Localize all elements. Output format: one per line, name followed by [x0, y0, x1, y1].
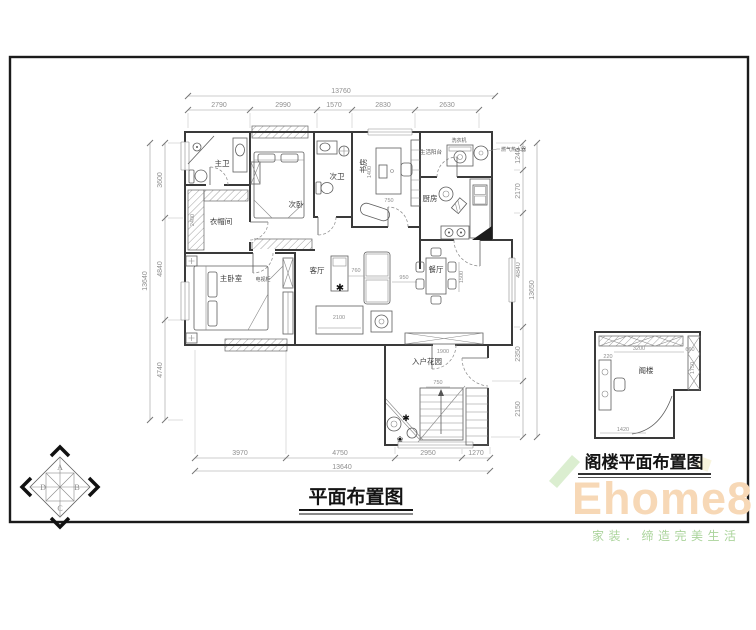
- dim-right-4: 2350: [515, 346, 522, 362]
- dining-table: [426, 258, 446, 294]
- compass-letter-e: B: [74, 483, 79, 492]
- room-label-master-bath: 主卫: [215, 158, 230, 168]
- flower-icon: ❀: [397, 435, 404, 444]
- dim-left-total: 13640: [142, 271, 149, 291]
- washer-label: 洗衣机: [451, 137, 466, 144]
- room-label-kitchen: 厨房: [423, 193, 438, 203]
- dimension-chain-left: 3600 4840 4740 13640: [142, 140, 183, 423]
- main-floor-plan: ✱ ✱ ❀ 主卫 衣帽间 次卧 次卫 书房 生活阳台 厨房 主卧室 客厅 餐厅 …: [181, 126, 526, 449]
- dim-shoe-cabinet: 1900: [437, 349, 449, 355]
- tv-cabinet-label: 电视柜: [255, 276, 270, 283]
- dim-bottom-4: 1270: [468, 450, 484, 457]
- floor-plan-drawing: 13760 2790 2990 1570 2830 2630 3970 4750…: [0, 0, 756, 630]
- main-title: 平面布置图: [308, 485, 403, 508]
- room-label-second-bedroom: 次卧: [289, 199, 304, 209]
- dim-left-3: 4740: [157, 362, 164, 378]
- room-label-second-bath: 次卫: [330, 171, 345, 181]
- dim-bottom-2: 4750: [332, 450, 348, 457]
- room-label-master-bedroom: 主卧室: [220, 273, 243, 283]
- dim-bottom-3: 2950: [420, 450, 436, 457]
- dim-top-5: 2630: [439, 102, 455, 109]
- bedroom-wardrobe-hatch: [252, 239, 312, 250]
- room-label-entry-garden: 入户花园: [412, 356, 442, 366]
- kitchen-fixtures: [439, 179, 492, 240]
- plant-icon: ✱: [402, 413, 410, 423]
- master-bedroom-furniture: [186, 256, 293, 343]
- floor-plan-sheet: 13760 2790 2990 1570 2830 2630 3970 4750…: [0, 0, 756, 630]
- dim-attic-desk: 220: [603, 354, 612, 360]
- washing-machine: [454, 151, 466, 163]
- water-heater-label: 燃气热水器: [501, 146, 526, 153]
- closet-top-wardrobe-hatch: [204, 190, 248, 201]
- dim-bottom-total: 13640: [332, 464, 352, 471]
- dim-top-3: 1570: [326, 102, 342, 109]
- attic-title: 阁楼平面布置图: [585, 452, 704, 472]
- plant-icon: ✱: [336, 283, 344, 294]
- dim-top-4: 2830: [375, 102, 391, 109]
- dim-closet: 2400: [190, 214, 196, 226]
- dim-bottom-1: 3970: [232, 450, 248, 457]
- dim-right-3: 4840: [515, 262, 522, 278]
- dim-sofa-dining: 950: [399, 275, 408, 281]
- dimension-chain-top: 13760 2790 2990 1570 2830 2630: [185, 88, 498, 128]
- attic-chair: [614, 378, 625, 391]
- dim-left-1: 3600: [157, 172, 164, 188]
- dimension-chain-bottom: 3970 4750 2950 1270 13640: [192, 350, 493, 474]
- compass-letter-w: D: [40, 483, 46, 492]
- dim-attic-top-right: 660: [685, 347, 694, 353]
- dim-top-total: 13760: [331, 88, 351, 95]
- dim-right-total: 13650: [529, 280, 536, 300]
- dim-study-v: 1400: [367, 166, 373, 178]
- dim-stairs: 750: [433, 380, 442, 386]
- compass-letter-s: C: [57, 504, 62, 513]
- second-bath-fixtures: [316, 141, 349, 194]
- attic-plan: 阁楼 3200 660 220 1750 1420: [595, 332, 700, 438]
- dim-living-gap: 760: [351, 268, 360, 274]
- interior-walls: [185, 132, 492, 345]
- dim-tv: 2100: [333, 315, 345, 321]
- dim-top-1: 2790: [211, 102, 227, 109]
- water-heater: [474, 146, 488, 160]
- room-label-service-balcony: 生活阳台: [420, 148, 443, 156]
- dim-dining: 1500: [459, 271, 465, 283]
- dim-right-5: 2150: [515, 401, 522, 417]
- compass-letter-n: A: [57, 463, 63, 472]
- dim-study-h: 750: [384, 198, 393, 204]
- study-furniture: [359, 140, 420, 222]
- dim-left-2: 4840: [157, 261, 164, 277]
- room-label-attic: 阁楼: [639, 365, 654, 375]
- dim-top-2: 2990: [275, 102, 291, 109]
- dining-furniture: [416, 248, 459, 304]
- dim-attic-bottom: 1420: [617, 427, 629, 433]
- room-label-closet: 衣帽间: [210, 216, 233, 226]
- room-label-dining-room: 餐厅: [429, 265, 444, 274]
- dim-right-2: 2170: [515, 183, 522, 199]
- room-label-living-room: 客厅: [310, 265, 325, 275]
- brand-tagline: 家装．缔造完美生活: [592, 528, 741, 543]
- attic-desk: [599, 360, 611, 410]
- dim-attic-top: 3200: [633, 346, 645, 352]
- brand-logo: Ehome8: [572, 473, 753, 524]
- compass-icon: A B C D: [22, 447, 98, 527]
- dim-attic-right: 1750: [690, 362, 696, 374]
- living-room-furniture: [316, 252, 417, 334]
